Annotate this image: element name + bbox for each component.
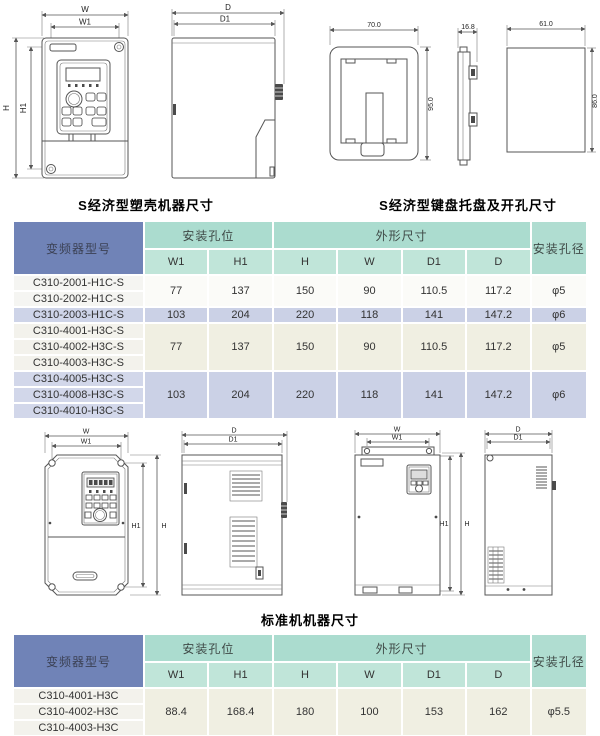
dim-label-w1: W1: [79, 18, 92, 27]
economy-drive-dimension-drawing: W W1 H H1: [0, 0, 300, 212]
value-cell: 103: [145, 372, 207, 418]
header-h1: H1: [209, 663, 271, 687]
dim-label-h1: H1: [132, 523, 141, 530]
economy-spec-table: 变频器型号 安装孔位 外形尺寸 安装孔径 W1 H1 H W D1 D C310…: [12, 220, 588, 420]
value-cell: φ5: [532, 324, 586, 370]
keypad-panel: [57, 60, 110, 134]
economy-front-view: W W1 H H1: [2, 5, 128, 178]
value-cell: 220: [274, 372, 336, 418]
header-hole-dia: 安装孔径: [532, 222, 586, 274]
dim-label-h1: H1: [19, 102, 28, 113]
value-cell: 110.5: [403, 276, 465, 306]
header-w1: W1: [145, 250, 207, 274]
table-row: C310-2003-H1C-S 103 204 220 118 141 147.…: [14, 308, 586, 322]
bottom-slot: [73, 572, 97, 580]
value-cell: 77: [145, 324, 207, 370]
model-cell: C310-2002-H1C-S: [14, 292, 143, 306]
header-w: W: [338, 250, 400, 274]
value-cell: 90: [338, 276, 400, 306]
nameplate-slot: [361, 459, 383, 466]
value-cell: 150: [274, 324, 336, 370]
header-model: 变频器型号: [14, 222, 143, 274]
model-cell: C310-4003-H3C-S: [14, 356, 143, 370]
value-cell: 88.4: [145, 689, 207, 735]
value-cell: φ5: [532, 276, 586, 306]
model-cell: C310-4010-H3C-S: [14, 404, 143, 418]
value-cell: 118: [338, 372, 400, 418]
header-outline: 外形尺寸: [274, 222, 530, 248]
value-cell: 137: [209, 324, 271, 370]
header-model: 变频器型号: [14, 635, 143, 687]
table-row: C310-4005-H3C-S 103 204 220 118 141 147.…: [14, 372, 586, 386]
standard-small-side-view: D D1: [182, 428, 287, 596]
standard-drive-small-dimension-drawing: W W1 H1 H: [0, 425, 300, 625]
dim-label-tray-height: 95.0: [428, 97, 435, 111]
value-cell: 137: [209, 276, 271, 306]
value-cell: 90: [338, 324, 400, 370]
value-cell: 180: [274, 689, 336, 735]
value-cell: 117.2: [467, 276, 529, 306]
value-cell: 110.5: [403, 324, 465, 370]
value-cell: 141: [403, 372, 465, 418]
header-mounting-holes: 安装孔位: [145, 635, 272, 661]
header-outline: 外形尺寸: [274, 635, 530, 661]
table-row: C310-4001-H3C-S 77 137 150 90 110.5 117.…: [14, 324, 586, 338]
dim-label-d: D: [225, 3, 231, 12]
dim-label-cutout-width: 61.0: [539, 21, 553, 28]
jog-knob: [416, 485, 423, 492]
value-cell: 117.2: [467, 324, 529, 370]
dim-label-cutout-height: 86.0: [592, 94, 599, 108]
standard-small-front-view: W W1 H1 H: [45, 429, 167, 596]
value-cell: 162: [467, 689, 529, 735]
nameplate-slot: [50, 44, 76, 51]
header-d: D: [467, 663, 529, 687]
value-cell: 150: [274, 276, 336, 306]
tray-cutout-view: 61.0 86.0: [507, 21, 599, 152]
header-d: D: [467, 250, 529, 274]
dim-label-w1: W1: [392, 435, 403, 442]
value-cell: 204: [209, 372, 271, 418]
dim-label-d1: D1: [229, 437, 238, 444]
header-d1: D1: [403, 250, 465, 274]
value-cell: φ6: [532, 372, 586, 418]
table-header-row: 变频器型号 安装孔位 外形尺寸 安装孔径: [14, 635, 586, 661]
header-h: H: [274, 663, 336, 687]
standard-drive-large-dimension-drawing: W W1 H1 H: [300, 425, 600, 625]
value-cell: 220: [274, 308, 336, 322]
table-row: C310-4001-H3C 88.4 168.4 180 100 153 162…: [14, 689, 586, 703]
standard-spec-table: 变频器型号 安装孔位 外形尺寸 安装孔径 W1 H1 H W D1 D C310…: [12, 633, 588, 736]
header-h: H: [274, 250, 336, 274]
model-cell: C310-4001-H3C: [14, 689, 143, 703]
dim-label-h: H: [161, 523, 166, 530]
side-outline: [182, 455, 282, 595]
value-cell: 77: [145, 276, 207, 306]
standard-large-side-view: D D1: [485, 427, 556, 596]
dim-label-w1: W1: [81, 439, 92, 446]
dim-label-h: H: [2, 105, 11, 111]
value-cell: 100: [338, 689, 400, 735]
display-window: [411, 470, 427, 479]
tray-front-view: 70.0 95.0: [330, 22, 435, 160]
caption-economy-case: S经济型塑壳机器尺寸: [0, 195, 292, 214]
dim-label-d1: D1: [220, 15, 231, 24]
dim-label-h: H: [464, 521, 469, 528]
value-cell: 204: [209, 308, 271, 322]
model-cell: C310-2001-H1C-S: [14, 276, 143, 290]
model-cell: C310-4002-H3C: [14, 705, 143, 719]
model-cell: C310-2003-H1C-S: [14, 308, 143, 322]
table-header-row: 变频器型号 安装孔位 外形尺寸 安装孔径: [14, 222, 586, 248]
value-cell: 153: [403, 689, 465, 735]
caption-keypad-tray: S经济型键盘托盘及开孔尺寸: [318, 195, 600, 214]
manual-dimensions-page: W W1 H H1: [0, 0, 600, 736]
table-row: C310-2001-H1C-S 77 137 150 90 110.5 117.…: [14, 276, 586, 290]
caption-standard-machine: 标准机机器尺寸: [0, 610, 600, 629]
header-mounting-holes: 安装孔位: [145, 222, 272, 248]
dim-label-d: D: [515, 427, 520, 434]
tray-side-view: 16.8: [458, 24, 477, 165]
economy-side-view: D D1: [172, 3, 284, 178]
header-h1: H1: [209, 250, 271, 274]
cutout-outline: [507, 48, 585, 152]
tray-bottom-tab: [361, 143, 384, 156]
keypad-tray-dimension-drawing: 70.0 95.0 16.8 61.0: [300, 0, 600, 212]
header-hole-dia: 安装孔径: [532, 635, 586, 687]
header-w: W: [338, 663, 400, 687]
value-cell: 168.4: [209, 689, 271, 735]
model-cell: C310-4003-H3C: [14, 721, 143, 735]
value-cell: 147.2: [467, 372, 529, 418]
header-d1: D1: [403, 663, 465, 687]
dim-label-w: W: [83, 429, 90, 436]
side-knob: [552, 481, 556, 490]
model-cell: C310-4008-H3C-S: [14, 388, 143, 402]
dim-label-w: W: [394, 427, 401, 434]
keypad-panel: [82, 472, 119, 525]
standard-large-front-view: W W1 H1 H: [355, 427, 470, 596]
side-outline: [172, 38, 275, 178]
keypad-panel: [407, 465, 431, 494]
header-w1: W1: [145, 663, 207, 687]
value-cell: 103: [145, 308, 207, 322]
model-cell: C310-4005-H3C-S: [14, 372, 143, 386]
value-cell: 141: [403, 308, 465, 322]
dim-label-h1: H1: [440, 521, 449, 528]
value-cell: φ6: [532, 308, 586, 322]
value-cell: 118: [338, 308, 400, 322]
dim-label-tray-width: 70.0: [367, 22, 381, 29]
value-cell: φ5.5: [532, 689, 586, 735]
model-cell: C310-4001-H3C-S: [14, 324, 143, 338]
display-window: [66, 68, 100, 81]
dim-label-d1: D1: [514, 435, 523, 442]
mounting-bar: [362, 447, 434, 455]
tray-center-slot: [366, 93, 383, 143]
dim-label-w: W: [81, 5, 89, 14]
dim-label-tray-depth: 16.8: [461, 24, 475, 31]
model-cell: C310-4002-H3C-S: [14, 340, 143, 354]
dim-label-d: D: [231, 428, 236, 435]
side-slot: [173, 104, 176, 115]
mounting-hole: [487, 455, 493, 461]
value-cell: 147.2: [467, 308, 529, 322]
